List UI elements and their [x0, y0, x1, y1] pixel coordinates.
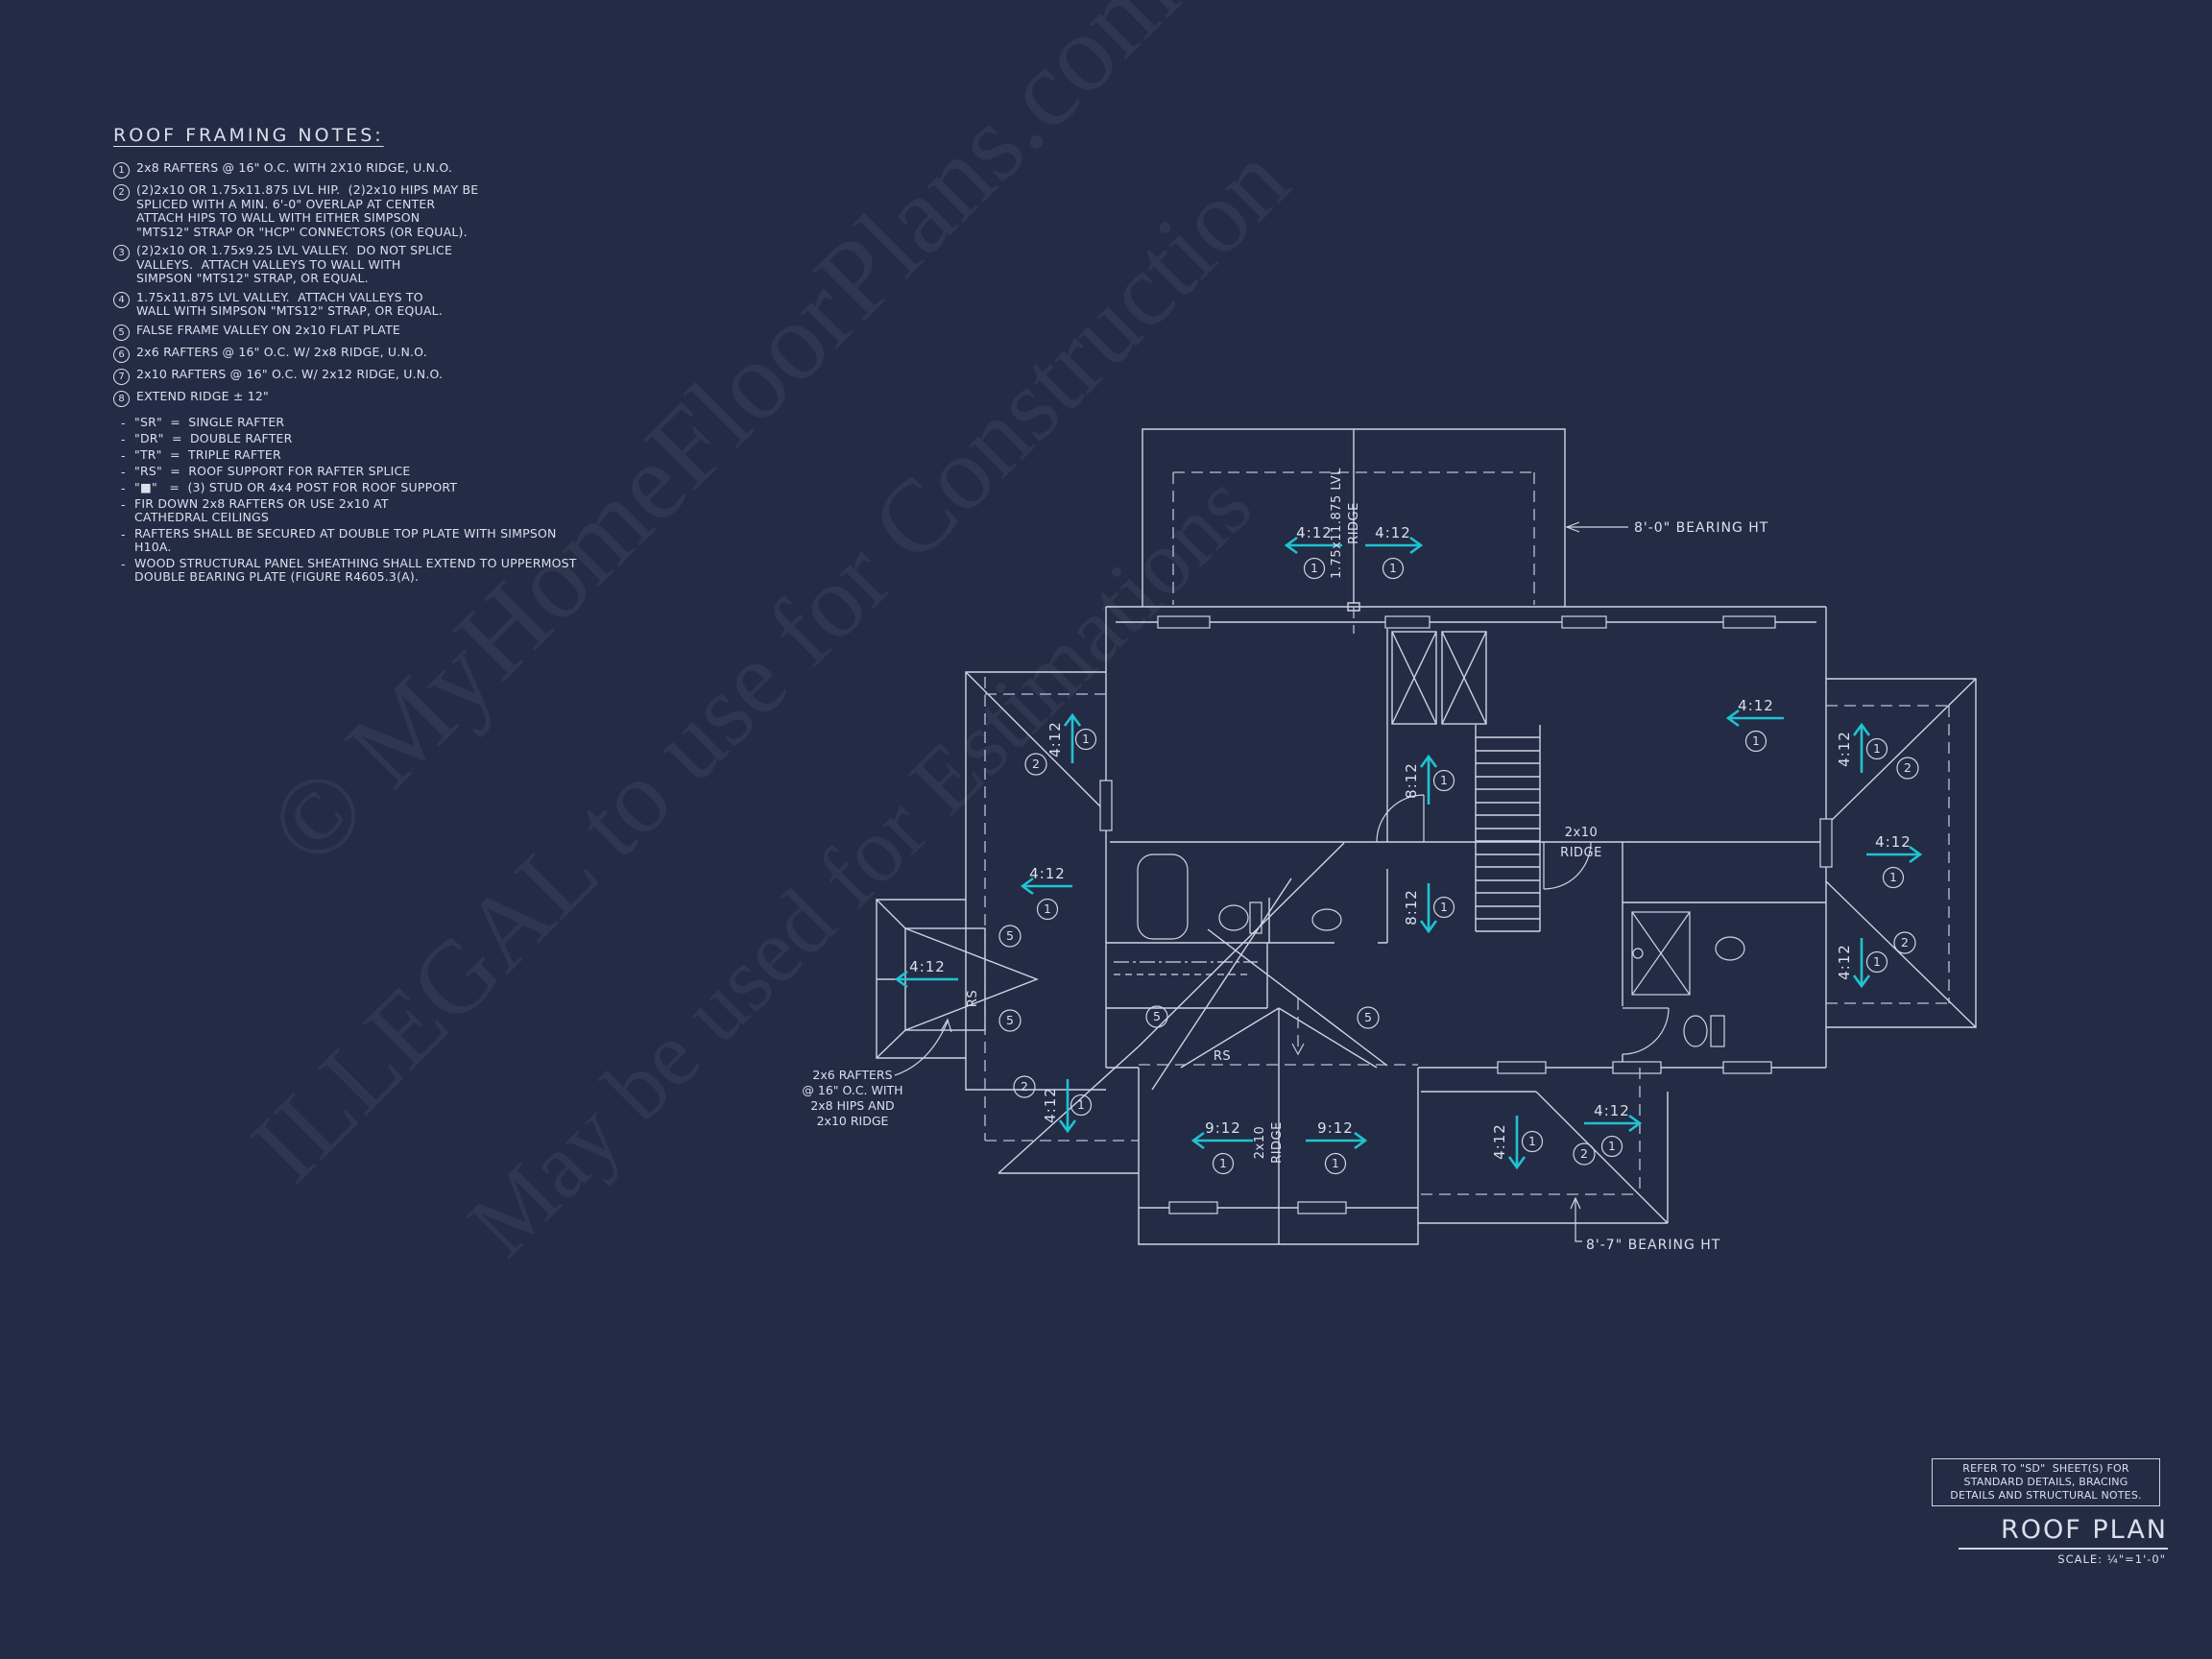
svg-text:2: 2	[1021, 1079, 1028, 1094]
svg-text:2: 2	[1901, 935, 1909, 950]
slope-label: 4:12	[1836, 731, 1853, 767]
toilet	[1219, 905, 1248, 930]
svg-text:5: 5	[1364, 1010, 1372, 1024]
svg-text:1: 1	[1528, 1135, 1536, 1148]
svg-text:1: 1	[1077, 1098, 1085, 1112]
ridge-label-gable: 2x10	[1253, 1126, 1267, 1160]
rs-label: RS	[966, 990, 980, 1007]
svg-text:1: 1	[1389, 562, 1397, 575]
svg-text:1: 1	[1044, 902, 1051, 916]
slope-label: 4:12	[1738, 697, 1774, 714]
sink	[1716, 937, 1744, 960]
door-swing	[1623, 1008, 1669, 1054]
svg-text:2: 2	[1032, 757, 1040, 771]
ridge-label-main: RIDGE	[1560, 846, 1602, 860]
slope-label: 9:12	[1317, 1119, 1354, 1137]
svg-text:1: 1	[1310, 562, 1318, 575]
arrow-callouts	[1038, 559, 1904, 1174]
slope-label: 8:12	[1403, 762, 1420, 799]
svg-text:1: 1	[1440, 774, 1448, 787]
ridge-label-top: 1.75x11.875 LVL	[1330, 468, 1344, 579]
toilet	[1684, 1016, 1707, 1046]
svg-text:1: 1	[1889, 871, 1897, 884]
svg-text:1: 1	[1752, 734, 1760, 748]
svg-text:5: 5	[1153, 1009, 1161, 1023]
slope-label: 9:12	[1205, 1119, 1241, 1137]
svg-text:5: 5	[1006, 1013, 1014, 1027]
ridge-label-main: 2x10	[1565, 826, 1599, 840]
refer-note-text: REFER TO "SD" SHEET(S) FOR STANDARD DETA…	[1950, 1462, 2141, 1503]
sheet-title: ROOF PLAN	[1959, 1515, 2168, 1550]
hip-callouts	[999, 754, 1918, 1165]
bearing-height-top: 8'-0" BEARING HT	[1634, 520, 1768, 536]
door-swing	[1377, 795, 1424, 842]
svg-text:1: 1	[1873, 955, 1881, 969]
svg-text:2: 2	[1580, 1146, 1588, 1161]
slope-label: 4:12	[1875, 833, 1911, 851]
rs-label: RS	[1214, 1049, 1231, 1064]
svg-text:5: 5	[1006, 928, 1014, 943]
slope-label: 4:12	[1042, 1087, 1059, 1123]
slope-label: 4:12	[1836, 944, 1853, 980]
slope-label: 4:12	[1375, 524, 1411, 541]
slope-label: 4:12	[1594, 1102, 1630, 1119]
svg-text:2: 2	[1904, 760, 1911, 775]
svg-text:1: 1	[1440, 901, 1448, 914]
roof-plan-drawing: 4:12 4:12 4:12 4:12 4:12 4:12 4:12 8:12 …	[0, 0, 2212, 1659]
ridge-label-gable: RIDGE	[1270, 1121, 1285, 1164]
slope-label: 4:12	[1046, 721, 1064, 757]
bathtub	[1138, 854, 1188, 939]
sink	[1312, 909, 1341, 930]
slope-label: 4:12	[1029, 865, 1066, 882]
slope-label: 8:12	[1403, 889, 1420, 926]
slope-label: 4:12	[909, 958, 946, 975]
svg-text:1: 1	[1219, 1157, 1227, 1170]
rafter-leader-note: 2x6 RAFTERS @ 16" O.C. WITH 2x8 HIPS AND…	[795, 1068, 910, 1129]
ridge-label-top: RIDGE	[1347, 502, 1361, 544]
arrow-callout-numbers: 1 1 1 1 1 1 1 1 1 1 1 1 1 1 1	[1044, 562, 1897, 1170]
refer-note-box: REFER TO "SD" SHEET(S) FOR STANDARD DETA…	[1932, 1458, 2160, 1506]
svg-text:1: 1	[1082, 733, 1090, 746]
svg-text:1: 1	[1873, 742, 1881, 756]
sheet-scale: SCALE: ¼"=1'-0"	[1959, 1552, 2166, 1566]
slope-label: 4:12	[1296, 524, 1333, 541]
slope-label: 4:12	[1491, 1123, 1508, 1160]
svg-text:1: 1	[1332, 1157, 1339, 1170]
blueprint-sheet: © MyHomeFloorPlans.com ILLEGAL to use fo…	[0, 0, 2212, 1659]
eave-dashed-lines	[985, 472, 1949, 1194]
hip-callout-numbers: 2 2 2 2 2 5 5 5 5	[1006, 757, 1911, 1161]
svg-text:1: 1	[1608, 1140, 1616, 1153]
bearing-height-bottom: 8'-7" BEARING HT	[1586, 1238, 1720, 1253]
